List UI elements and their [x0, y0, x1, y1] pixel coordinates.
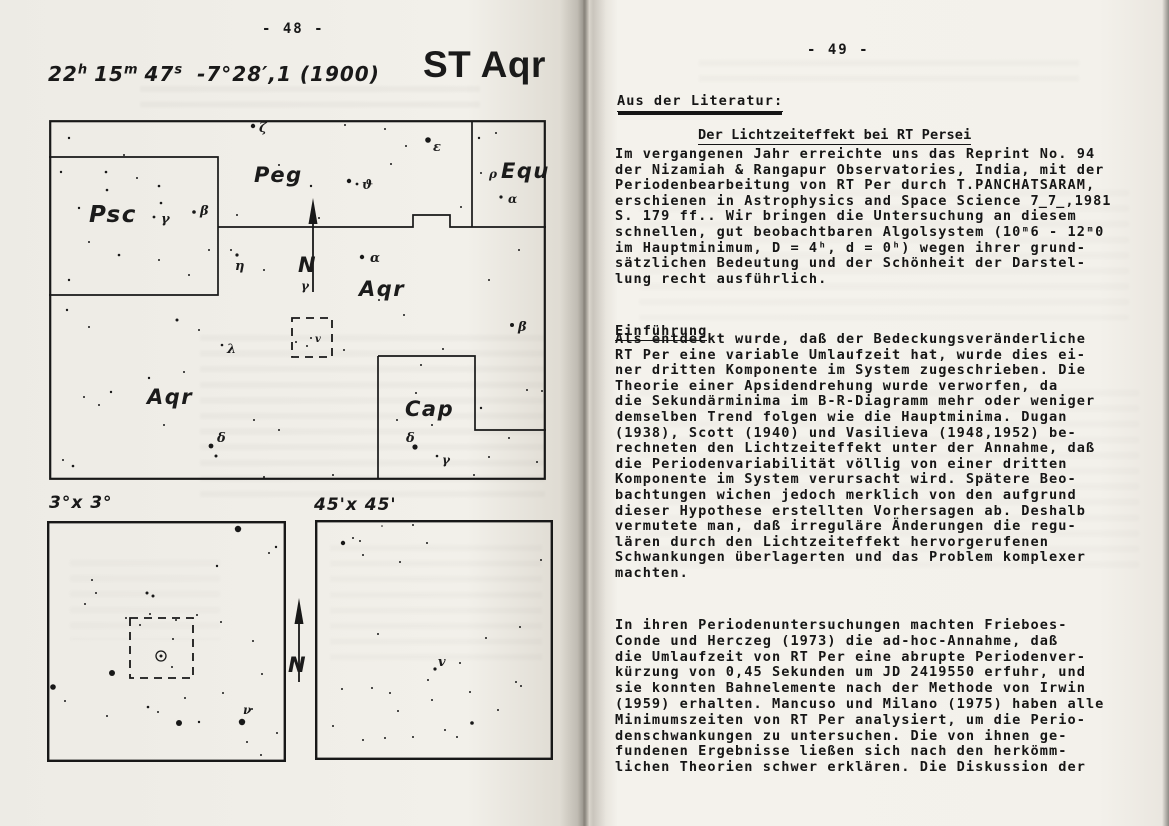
star-dot	[469, 691, 471, 693]
variable-field-dashed-box	[292, 318, 332, 357]
star-label-rho-equ: ρ	[488, 167, 498, 181]
north-arrow-head	[295, 598, 304, 624]
star-dot	[470, 721, 474, 725]
page-number-left: - 48 -	[262, 21, 325, 37]
star-dot	[175, 619, 177, 621]
star-dot	[508, 437, 510, 439]
star-dot	[246, 741, 248, 743]
constellation-boundary-line	[218, 215, 546, 227]
star-dot	[456, 736, 458, 738]
north-label: N	[298, 253, 317, 277]
star-dot	[184, 697, 186, 699]
star-dot	[153, 216, 156, 219]
star-dot	[352, 537, 354, 539]
star-dot	[236, 214, 238, 216]
star-dot	[88, 326, 90, 328]
star-dot	[215, 455, 218, 458]
star-dot	[431, 424, 433, 426]
star-dot	[478, 137, 480, 139]
star-label-zeta: ζ	[259, 121, 268, 136]
star-dot	[371, 687, 373, 689]
star-dot	[198, 721, 200, 723]
bleed-through-ghost	[140, 86, 480, 116]
star-dot	[152, 595, 155, 598]
star-dot	[332, 725, 334, 727]
star-dot	[426, 542, 428, 544]
star-dot	[139, 624, 141, 626]
star-label-theta: ϑ	[362, 178, 373, 193]
star-dot	[276, 732, 278, 734]
paragraph-einfuehrung-1: Als entdeckt wurde, daß der Bedeckungsve…	[615, 332, 1140, 582]
star-dot	[163, 424, 165, 426]
star-dot	[360, 255, 364, 259]
star-dot	[208, 249, 210, 251]
star-dot	[436, 455, 439, 458]
star-label-gamma-psc: γ	[161, 212, 171, 227]
star-dot	[344, 124, 346, 126]
star-dot	[105, 171, 108, 174]
declination-epoch: -7°28′,1 (1900)	[197, 62, 380, 86]
chart-caption-45min: 45'x 45'	[314, 495, 397, 515]
constellation-label-peg: Peg	[254, 163, 303, 187]
star-dot	[268, 552, 270, 554]
scanned-journal-spread: - 48 - ST Aqr 22h15m47s-7°28′,1 (1900) P…	[0, 0, 1169, 826]
star-dot	[541, 390, 543, 392]
star-dot	[176, 720, 182, 726]
star-dot	[519, 626, 521, 628]
star-dot	[109, 670, 115, 676]
star-dot	[341, 541, 345, 545]
north-label: N	[288, 653, 307, 677]
star-dot	[306, 345, 308, 347]
finder-chart-45min: v	[315, 520, 553, 760]
star-dot	[381, 525, 383, 527]
star-dot	[64, 700, 66, 702]
star-dot	[123, 154, 125, 156]
star-dot	[515, 681, 517, 683]
star-dot	[68, 279, 70, 281]
star-dot	[171, 666, 173, 668]
star-dot	[275, 546, 277, 548]
star-dot	[183, 371, 185, 373]
star-dot	[160, 202, 163, 205]
finder-chart-main: PegPscEquAqrAqrCapζεϑβγηγαραβλδδγvN	[49, 120, 546, 480]
star-dot	[220, 621, 222, 623]
star-dot	[459, 662, 461, 664]
star-label-alpha-aqr: α	[370, 251, 380, 266]
star-dot	[390, 163, 392, 165]
star-dot	[310, 337, 312, 339]
star-dot	[295, 341, 297, 343]
star-dot	[95, 592, 97, 594]
star-dot	[510, 323, 514, 327]
paragraph-einfuehrung-2: In ihren Periodenuntersuchungen machten …	[615, 618, 1145, 776]
star-dot	[444, 729, 446, 731]
star-dot	[98, 404, 100, 406]
star-dot	[359, 540, 361, 542]
chart-frame	[316, 521, 552, 759]
page-48: - 48 - ST Aqr 22h15m47s-7°28′,1 (1900) P…	[0, 0, 583, 826]
star-dot	[473, 474, 475, 476]
star-label-beta-psc: β	[199, 204, 209, 219]
star-label-gamma-cap: γ	[442, 453, 451, 467]
star-dot	[146, 592, 149, 595]
star-dot	[356, 183, 359, 186]
chart-frame	[48, 522, 285, 761]
star-dot	[62, 459, 64, 461]
star-dot	[239, 719, 245, 725]
star-dot	[209, 444, 214, 449]
constellation-label-psc: Psc	[89, 202, 137, 228]
star-dot	[396, 419, 398, 421]
star-dot	[84, 603, 86, 605]
star-dot	[389, 692, 391, 694]
star-dot	[176, 319, 179, 322]
star-dot	[405, 145, 407, 147]
star-dot	[66, 309, 68, 311]
ra-seconds: 47s	[145, 62, 184, 86]
star-dot	[83, 396, 85, 398]
star-dot	[50, 684, 56, 690]
star-dot	[91, 579, 93, 581]
star-dot	[497, 709, 499, 711]
star-dot	[377, 633, 379, 635]
scan-right-edge	[1162, 0, 1169, 826]
star-dot	[362, 739, 364, 741]
star-dot	[149, 613, 151, 615]
star-label-delta-cap: δ	[405, 431, 415, 446]
north-arrow-between-charts: N	[285, 592, 315, 692]
star-dot	[136, 177, 138, 179]
star-dot	[518, 249, 520, 251]
constellation-label-aqr: Aqr	[357, 277, 405, 301]
constellation-boundary-line	[378, 356, 546, 430]
star-dot	[526, 389, 528, 391]
star-dot	[485, 637, 487, 639]
star-dot	[78, 207, 80, 209]
star-dot	[263, 269, 265, 271]
star-dot	[235, 253, 238, 256]
constellation-label-equ: Equ	[501, 159, 550, 183]
star-dot	[72, 465, 75, 468]
star-dot	[68, 137, 70, 139]
star-dot	[480, 407, 482, 409]
star-dot	[118, 254, 121, 257]
star-dot	[192, 210, 196, 214]
star-label-epsilon: ε	[433, 140, 441, 155]
star-dot	[106, 189, 109, 192]
star-dot	[221, 344, 224, 347]
star-dot	[332, 474, 334, 476]
star-dot	[343, 349, 345, 351]
star-dot	[198, 329, 200, 331]
star-dot	[536, 461, 538, 463]
star-dot	[384, 737, 386, 739]
chart-caption-3deg: 3°x 3°	[49, 493, 113, 513]
star-dot	[397, 710, 399, 712]
star-label-eta: η	[235, 259, 244, 274]
star-label-lambda: λ	[226, 342, 236, 357]
star-dot	[157, 711, 159, 713]
star-dot	[88, 241, 90, 243]
star-dot	[460, 206, 462, 208]
star-dot	[158, 185, 161, 188]
star-dot	[110, 391, 112, 393]
star-dot	[251, 124, 255, 128]
star-dot	[399, 561, 401, 563]
variable-star-marker: v	[315, 334, 321, 345]
star-dot	[230, 249, 232, 251]
star-dot	[442, 348, 444, 350]
star-dot	[425, 137, 431, 143]
star-dot	[216, 565, 218, 567]
star-label-nu: ν	[243, 703, 252, 717]
page-number-right: - 49 -	[807, 42, 870, 58]
star-dot	[403, 314, 405, 316]
star-dot	[60, 171, 62, 173]
variable-star-marker: v	[438, 655, 446, 670]
star-dot	[384, 128, 386, 130]
variable-star-dot	[160, 655, 163, 658]
star-dot	[278, 429, 280, 431]
star-label-gamma-aqr: γ	[301, 279, 310, 293]
constellation-label-aqr-2: Aqr	[145, 385, 193, 409]
star-dot	[235, 526, 241, 532]
star-dot	[540, 559, 542, 561]
star-dot	[427, 679, 429, 681]
star-dot	[480, 172, 482, 174]
star-dot	[222, 692, 224, 694]
star-dot	[347, 179, 351, 183]
star-dot	[147, 706, 150, 709]
star-dot	[341, 688, 343, 690]
star-dot	[260, 754, 262, 756]
star-dot	[488, 456, 490, 458]
star-dot	[196, 614, 198, 616]
star-dot	[431, 699, 433, 701]
page-title-star-name: ST Aqr	[423, 44, 546, 86]
section-header: Aus der Literatur:	[617, 78, 783, 112]
ra-hours: 22h	[48, 62, 88, 86]
star-dot	[488, 279, 490, 281]
coordinates: 22h15m47s-7°28′,1 (1900)	[48, 62, 380, 86]
star-dot	[415, 392, 417, 394]
star-dot	[412, 524, 414, 526]
constellation-label-cap: Cap	[405, 397, 454, 421]
star-dot	[412, 736, 414, 738]
star-dot	[253, 419, 255, 421]
star-dot	[520, 685, 522, 687]
star-label-alpha-equ: α	[508, 192, 517, 206]
star-dot	[158, 259, 160, 261]
star-dot	[252, 640, 254, 642]
star-dot	[310, 185, 312, 187]
star-dot	[148, 377, 150, 379]
article-title: Der Lichtzeiteffekt bei RT Persei	[698, 112, 971, 145]
star-dot	[318, 217, 320, 219]
ra-minutes: 15m	[94, 62, 138, 86]
north-arrow-head	[309, 198, 318, 224]
star-dot	[495, 132, 497, 134]
star-dot	[420, 364, 422, 366]
star-dot	[433, 667, 436, 670]
finder-chart-3deg: ν	[47, 521, 286, 762]
variable-field-dashed-box	[130, 618, 193, 678]
star-dot	[172, 638, 174, 640]
star-dot	[188, 274, 190, 276]
star-dot	[125, 617, 127, 619]
star-dot	[261, 673, 263, 675]
star-label-delta-aqr: δ	[216, 431, 226, 446]
star-label-beta-aqr: β	[517, 320, 527, 335]
paragraph-intro: Im vergangenen Jahr erreichte uns das Re…	[615, 147, 1135, 287]
star-dot	[499, 195, 502, 198]
star-dot	[362, 554, 364, 556]
star-dot	[106, 715, 108, 717]
